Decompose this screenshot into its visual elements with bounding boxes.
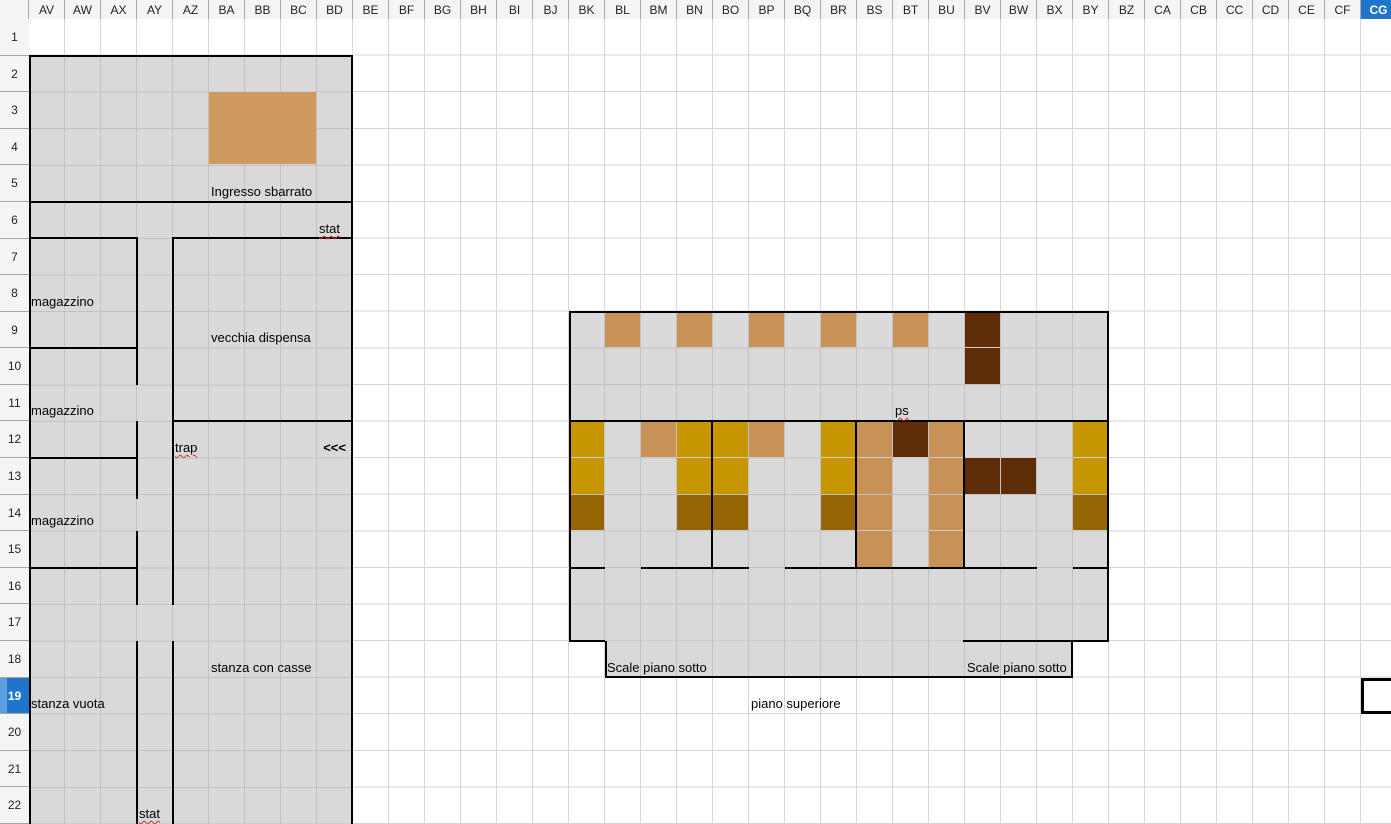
map-label[interactable]: stanza vuota [31, 696, 105, 712]
column-header-BI[interactable]: BI [497, 0, 533, 19]
map-wall [785, 567, 1037, 569]
row-header-4[interactable]: 4 [0, 129, 29, 165]
map-wall [136, 641, 138, 824]
map-cell-dark_gold[interactable] [821, 495, 856, 530]
map-cell-gold[interactable] [821, 421, 856, 457]
column-header-BB[interactable]: BB [245, 0, 281, 19]
map-label[interactable]: stanza con casse [211, 660, 311, 676]
map-cell-gold[interactable] [1073, 458, 1108, 494]
map-wall [1073, 567, 1109, 569]
map-wall [136, 421, 138, 499]
map-cell-tan[interactable] [929, 421, 964, 457]
map-wall [172, 237, 353, 239]
select-all-corner[interactable] [0, 0, 29, 19]
map-cell-dark_brown[interactable] [1001, 458, 1036, 494]
map-cell-gold[interactable] [677, 421, 712, 457]
row-header-13[interactable]: 13 [0, 458, 29, 495]
map-label[interactable]: Scale piano sotto [607, 660, 707, 676]
map-wall [29, 347, 137, 349]
row-header-5[interactable]: 5 [0, 165, 29, 202]
map-cell-entrance[interactable] [209, 92, 316, 164]
column-header-BC[interactable]: BC [281, 0, 317, 19]
map-wall [29, 201, 353, 203]
row-header-18[interactable]: 18 [0, 641, 29, 678]
spreadsheet-app: AVAWAXAYAZBABBBCBDBEBFBGBHBIBJBKBLBMBNBO… [0, 0, 1391, 824]
map-wall [569, 311, 1109, 313]
map-wall [1107, 311, 1109, 642]
map-wall [963, 421, 965, 567]
row-header-15[interactable]: 15 [0, 531, 29, 568]
row-header-10[interactable]: 10 [0, 348, 29, 385]
map-label[interactable]: ps [895, 403, 909, 419]
row-header-7[interactable]: 7 [0, 239, 29, 275]
map-cell-tan[interactable] [929, 531, 964, 567]
column-header-BV[interactable]: BV [965, 0, 1001, 19]
map-cell-tan[interactable] [929, 495, 964, 530]
column-header-CD[interactable]: CD [1253, 0, 1289, 19]
map-wall [172, 420, 353, 422]
column-header-AY[interactable]: AY [137, 0, 173, 19]
map-label[interactable]: stat [139, 806, 160, 822]
map-cell-dark_brown[interactable] [965, 312, 1000, 347]
row-header-12[interactable]: 12 [0, 421, 29, 458]
column-header-BP[interactable]: BP [749, 0, 785, 19]
map-cell-tan[interactable] [857, 495, 892, 530]
column-header-CE[interactable]: CE [1289, 0, 1325, 19]
row-header-16[interactable]: 16 [0, 568, 29, 604]
map-cell-dark_gold[interactable] [1073, 495, 1108, 530]
row-header-19[interactable]: 19 [0, 678, 29, 714]
map-wall [963, 640, 1109, 642]
column-header-BA[interactable]: BA [209, 0, 245, 19]
map-label[interactable]: Ingresso sbarrato [211, 184, 312, 200]
map-label[interactable]: magazzino [31, 403, 94, 419]
map-cell-dark_brown[interactable] [965, 348, 1000, 384]
column-header-AZ[interactable]: AZ [173, 0, 209, 19]
column-header-BK[interactable]: BK [569, 0, 605, 19]
column-header-BX[interactable]: BX [1037, 0, 1073, 19]
row-header-6[interactable]: 6 [0, 202, 29, 239]
column-header-CC[interactable]: CC [1217, 0, 1253, 19]
row-header-14[interactable]: 14 [0, 495, 29, 531]
map-wall [1071, 641, 1073, 677]
column-header-BZ[interactable]: BZ [1109, 0, 1145, 19]
map-cell-tan[interactable] [749, 312, 784, 347]
map-cell-tan[interactable] [893, 312, 928, 347]
map-label[interactable]: trap [175, 440, 197, 456]
map-wall [605, 676, 1073, 678]
selection-cursor [1361, 678, 1391, 714]
row-header-9[interactable]: 9 [0, 312, 29, 348]
column-header-BE[interactable]: BE [353, 0, 389, 19]
map-wall [29, 55, 353, 57]
row-header-3[interactable]: 3 [0, 92, 29, 129]
map-label[interactable]: <<< [317, 440, 350, 456]
row-header-11[interactable]: 11 [0, 385, 29, 421]
column-header-BU[interactable]: BU [929, 0, 965, 19]
row-header-22[interactable]: 22 [0, 787, 29, 824]
map-cell-dark_brown[interactable] [965, 458, 1000, 494]
map-cell-gold[interactable] [821, 458, 856, 494]
map-cell-tan[interactable] [677, 312, 712, 347]
column-header-AX[interactable]: AX [101, 0, 137, 19]
map-cell-tan[interactable] [857, 531, 892, 567]
column-header-BN[interactable]: BN [677, 0, 713, 19]
map-cell-dark_gold[interactable] [713, 495, 748, 530]
column-header-BL[interactable]: BL [605, 0, 641, 19]
column-header-BR[interactable]: BR [821, 0, 857, 19]
column-header-BO[interactable]: BO [713, 0, 749, 19]
column-header-BS[interactable]: BS [857, 0, 893, 19]
map-cell-gold[interactable] [569, 458, 604, 494]
row-header-17[interactable]: 17 [0, 604, 29, 641]
map-cell-gold[interactable] [713, 458, 748, 494]
map-cell-tan[interactable] [929, 458, 964, 494]
map-cell-dark_gold[interactable] [569, 495, 604, 530]
map-wall [29, 457, 137, 459]
row-header-8[interactable]: 8 [0, 275, 29, 312]
map-cell-gold[interactable] [569, 421, 604, 457]
map-cell-dark_brown[interactable] [893, 421, 928, 457]
map-label[interactable]: vecchia dispensa [211, 330, 311, 346]
map-cell-tan[interactable] [857, 458, 892, 494]
map-wall [569, 311, 571, 642]
map-wall [29, 237, 138, 239]
column-header-AV[interactable]: AV [29, 0, 65, 19]
map-wall [29, 567, 137, 569]
row-header-21[interactable]: 21 [0, 751, 29, 787]
map-wall [569, 640, 605, 642]
column-header-BH[interactable]: BH [461, 0, 497, 19]
row-header-highlight-strip [0, 678, 7, 713]
row-header-2[interactable]: 2 [0, 56, 29, 92]
map-cell-gold[interactable] [1073, 421, 1108, 457]
row-header-1[interactable]: 1 [0, 19, 29, 56]
map-wall [569, 567, 605, 569]
map-wall [641, 567, 749, 569]
column-header-BW[interactable]: BW [1001, 0, 1037, 19]
map-label[interactable]: magazzino [31, 294, 94, 310]
map-wall [136, 238, 138, 385]
map-cell-tan[interactable] [605, 312, 640, 347]
column-header-CF[interactable]: CF [1325, 0, 1361, 19]
column-header-BF[interactable]: BF [389, 0, 425, 19]
column-header-BY[interactable]: BY [1073, 0, 1109, 19]
map-cell-tan[interactable] [857, 421, 892, 457]
map-cell-tan[interactable] [641, 421, 676, 457]
column-header-CG[interactable]: CG [1361, 0, 1391, 19]
map-label[interactable]: magazzino [31, 513, 94, 529]
column-header-BG[interactable]: BG [425, 0, 461, 19]
map-cell-gold[interactable] [713, 421, 748, 457]
column-header-BM[interactable]: BM [641, 0, 677, 19]
column-header-BQ[interactable]: BQ [785, 0, 821, 19]
column-header-CB[interactable]: CB [1181, 0, 1217, 19]
map-wall [855, 421, 857, 567]
map-cell-dark_gold[interactable] [677, 495, 712, 530]
map-wall [351, 55, 353, 824]
map-wall [172, 641, 174, 824]
column-header-BT[interactable]: BT [893, 0, 929, 19]
map-label[interactable]: stat [319, 221, 340, 237]
map-wall [569, 420, 1109, 422]
map-label[interactable]: piano superiore [751, 696, 841, 712]
column-header-AW[interactable]: AW [65, 0, 101, 19]
column-header-BJ[interactable]: BJ [533, 0, 569, 19]
column-header-CA[interactable]: CA [1145, 0, 1181, 19]
column-header-BD[interactable]: BD [317, 0, 353, 19]
map-cell-gold[interactable] [677, 458, 712, 494]
map-label[interactable]: Scale piano sotto [967, 660, 1067, 676]
map-cell-tan[interactable] [749, 421, 784, 457]
row-header-20[interactable]: 20 [0, 714, 29, 751]
map-wall [711, 421, 713, 567]
map-cell-tan[interactable] [821, 312, 856, 347]
